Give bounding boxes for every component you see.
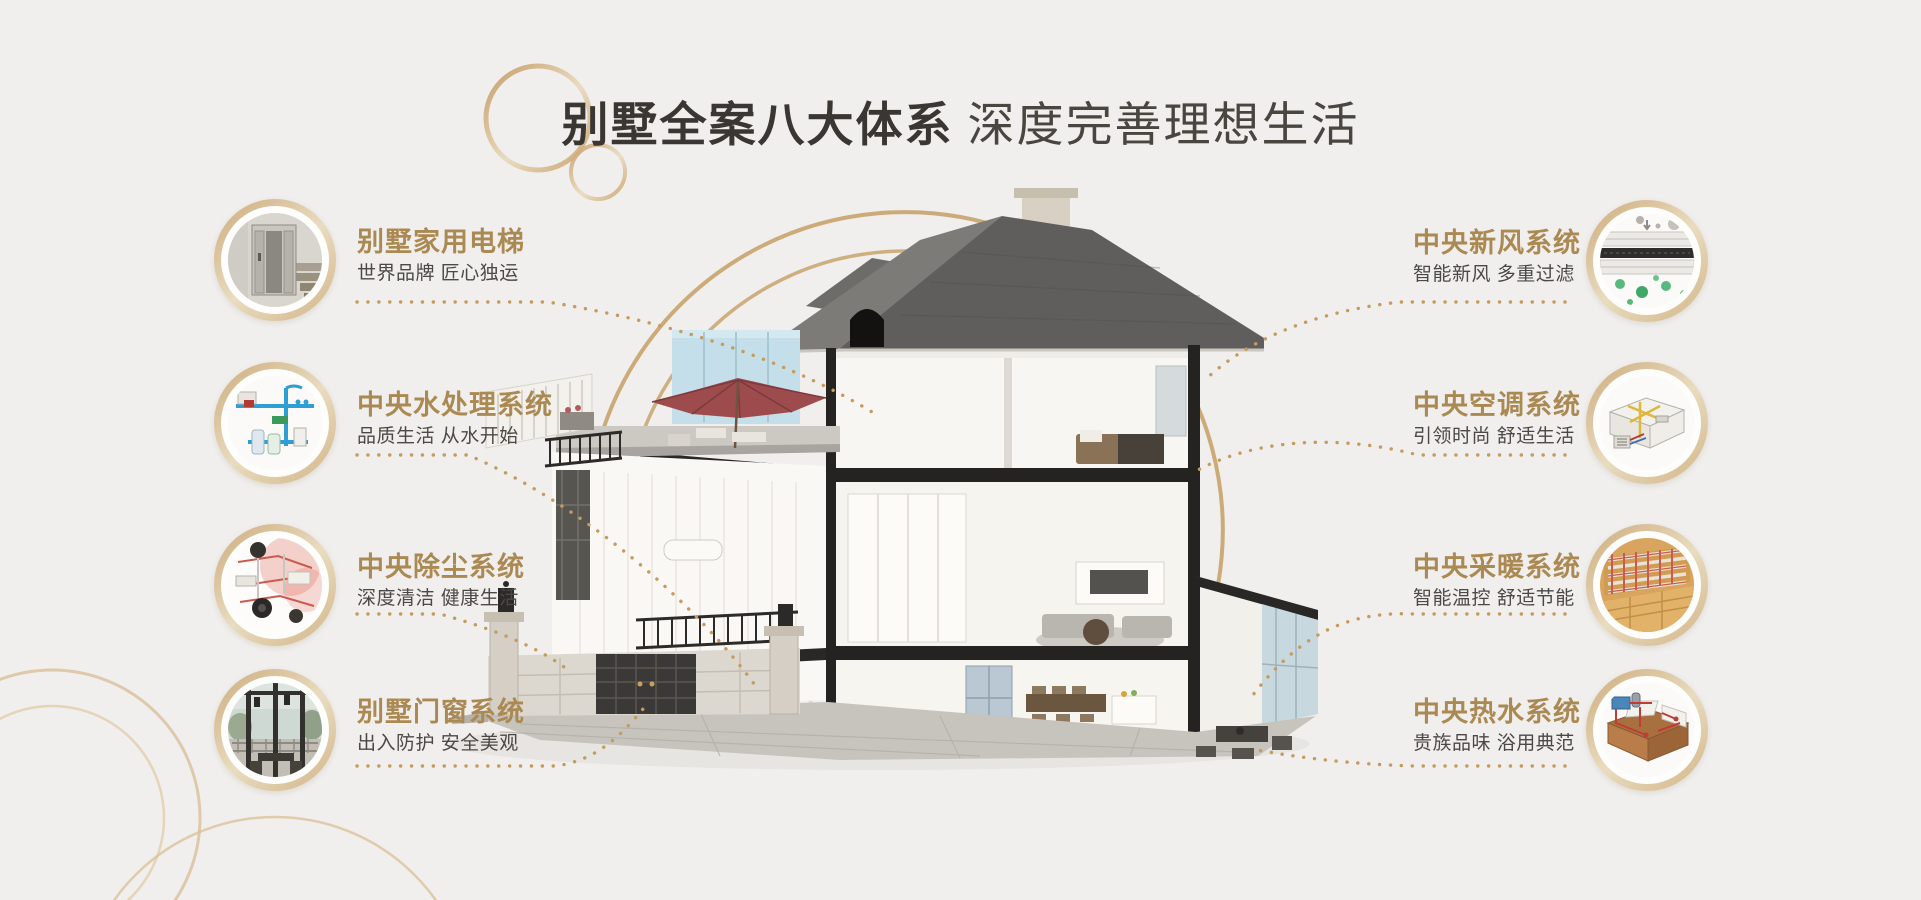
central-ac-floorplan-icon xyxy=(1600,376,1694,470)
system-item-floor-heating: 中央采暖系统 智能温控 舒适节能 xyxy=(1360,524,1780,654)
system-title: 中央采暖系统 xyxy=(1413,551,1583,583)
icon-ring xyxy=(214,199,336,321)
icon-ring xyxy=(1586,200,1708,322)
icon-ring xyxy=(1586,524,1708,646)
system-title: 别墅家用电梯 xyxy=(357,226,525,258)
water-treatment-diagram-icon xyxy=(228,376,322,470)
system-item-fresh-air: 中央新风系统 智能新风 多重过滤 xyxy=(1360,200,1780,330)
home-elevator-photo-icon xyxy=(228,213,322,307)
page-title: 别墅全案八大体系深度完善理想生活 xyxy=(0,86,1921,155)
system-item-central-ac: 中央空调系统 引领时尚 舒适生活 xyxy=(1360,362,1780,492)
door-window-photo-icon xyxy=(228,683,322,777)
hot-water-floorplan-icon xyxy=(1600,683,1694,777)
central-vacuum-diagram-icon xyxy=(228,538,322,632)
floor-heating-coil-icon xyxy=(1600,538,1694,632)
system-item-central-vacuum: 中央除尘系统 深度清洁 健康生活 xyxy=(214,524,634,654)
icon-ring xyxy=(214,669,336,791)
system-title: 中央水处理系统 xyxy=(357,389,553,421)
system-subtitle: 出入防护 安全美观 xyxy=(357,731,525,756)
roof-arched-dormer xyxy=(850,309,884,347)
system-subtitle: 引领时尚 舒适生活 xyxy=(1413,424,1583,449)
bathtub xyxy=(664,540,722,560)
icon-ring xyxy=(214,524,336,646)
system-title: 中央热水系统 xyxy=(1413,696,1583,728)
system-subtitle: 深度清洁 健康生活 xyxy=(357,586,525,611)
fresh-air-duct-diagram-icon xyxy=(1600,214,1694,308)
icon-ring xyxy=(1586,669,1708,791)
wardrobe xyxy=(848,494,966,642)
system-item-home-elevator: 别墅家用电梯 世界品牌 匠心独运 xyxy=(214,199,634,329)
system-title: 中央除尘系统 xyxy=(357,551,525,583)
villa-systems-poster: { "header": { "title_bold": "别墅全案八大体系", … xyxy=(0,0,1921,900)
page-title-light: 深度完善理想生活 xyxy=(968,98,1360,151)
system-title: 中央新风系统 xyxy=(1413,227,1583,259)
villa-right-wing xyxy=(1192,576,1318,734)
system-title: 别墅门窗系统 xyxy=(357,696,525,728)
system-title: 中央空调系统 xyxy=(1413,389,1583,421)
kitchen-island xyxy=(1112,696,1156,724)
system-subtitle: 智能温控 舒适节能 xyxy=(1413,586,1583,611)
page-title-bold: 别墅全案八大体系 xyxy=(562,98,954,151)
dining-table xyxy=(1026,694,1106,712)
gate-lantern xyxy=(778,604,793,626)
system-subtitle: 世界品牌 匠心独运 xyxy=(357,261,525,286)
system-item-water-treatment: 中央水处理系统 品质生活 从水开始 xyxy=(214,362,634,492)
system-item-hot-water: 中央热水系统 贵族品味 浴用典范 xyxy=(1360,669,1780,799)
system-subtitle: 贵族品味 浴用典范 xyxy=(1413,731,1583,756)
icon-ring xyxy=(214,362,336,484)
system-subtitle: 品质生活 从水开始 xyxy=(357,424,553,449)
icon-ring xyxy=(1586,362,1708,484)
system-subtitle: 智能新风 多重过滤 xyxy=(1413,262,1583,287)
coffee-table xyxy=(1083,619,1109,645)
system-item-door-window: 别墅门窗系统 出入防护 安全美观 xyxy=(214,669,634,799)
villa-roof xyxy=(760,216,1264,352)
